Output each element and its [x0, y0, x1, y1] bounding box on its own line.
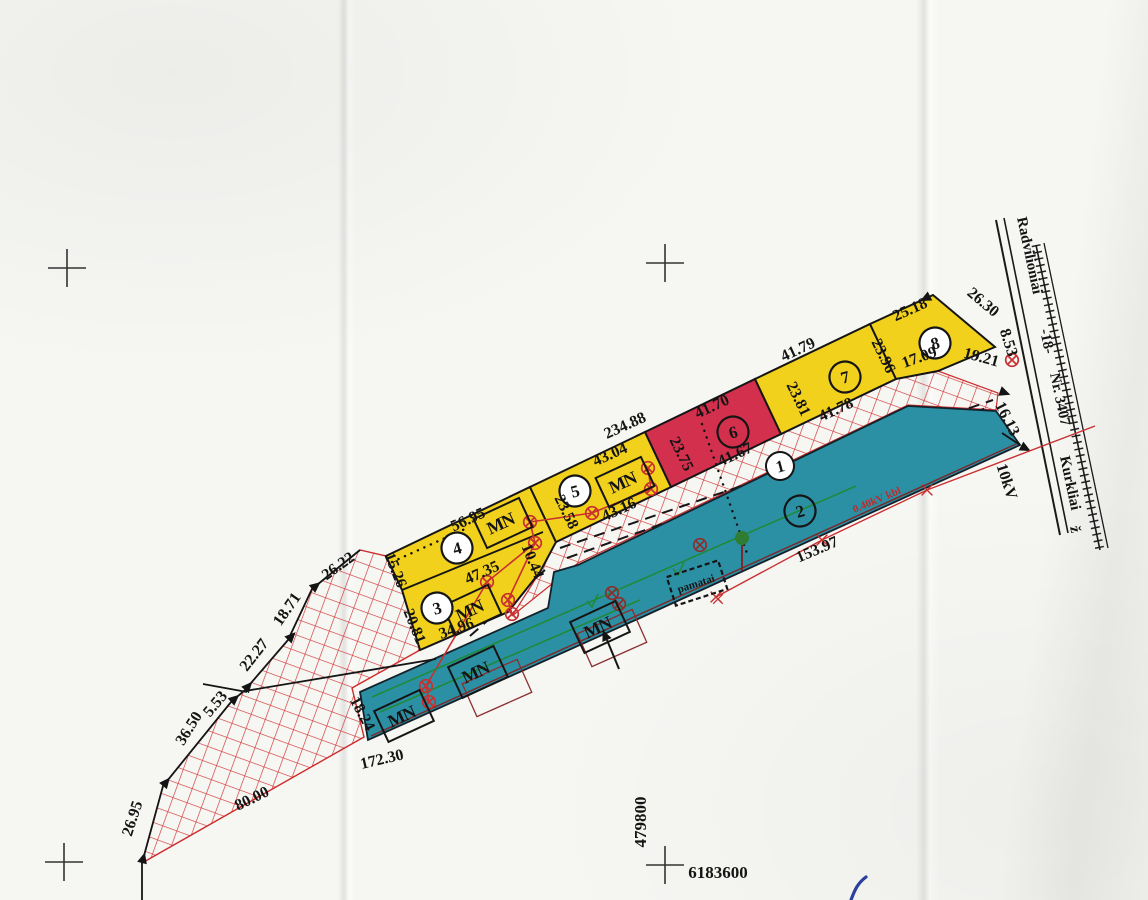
- scanned-survey-paper: 479800 6183600: [0, 0, 1148, 900]
- grid-cross: [646, 244, 684, 282]
- dim-west-seg6: 26.95: [119, 799, 146, 838]
- grid-easting-label: 479800: [631, 797, 650, 848]
- grid-cross: [48, 249, 86, 287]
- dim-strip-bottom: 172.30: [359, 746, 406, 772]
- grid-northing-label: 6183600: [688, 863, 748, 882]
- tree-symbol: [735, 531, 749, 545]
- pen-signature-stroke: [851, 877, 866, 900]
- grid-cross: [646, 846, 684, 884]
- dim-east-lower: 19.21: [962, 345, 1001, 371]
- grid-cross: [45, 843, 83, 881]
- hv-line-label: 10kV: [993, 462, 1021, 502]
- cadastral-plan-svg: 479800 6183600: [0, 0, 1148, 900]
- dim-p8-east: 26.30: [964, 284, 1003, 320]
- road-suffix-label: ž: [1066, 525, 1083, 535]
